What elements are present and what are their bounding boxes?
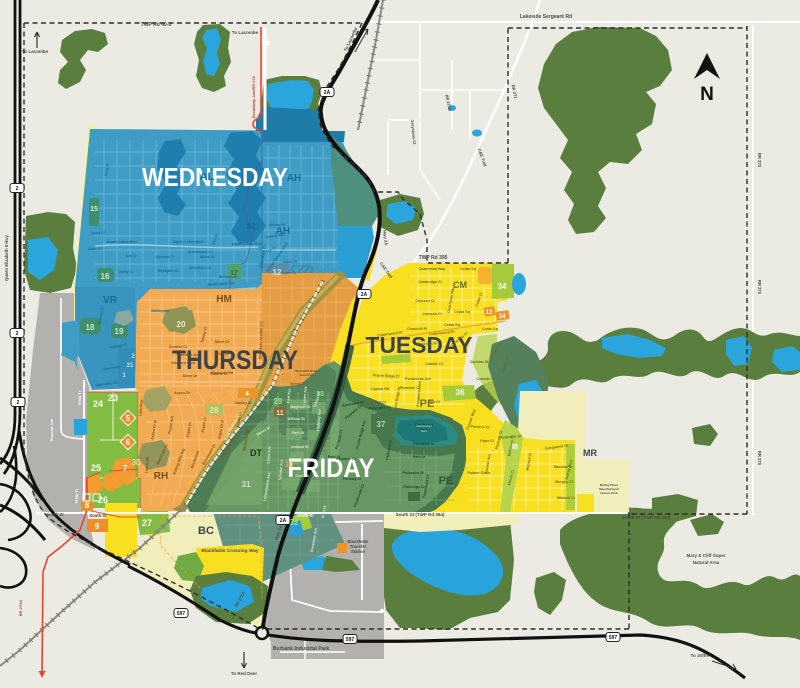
svg-text:Anna Cl: Anna Cl (91, 231, 105, 235)
svg-text:18: 18 (86, 323, 95, 332)
svg-text:Mitchell Cr: Mitchell Cr (557, 496, 576, 500)
svg-text:597: 597 (346, 637, 355, 643)
svg-text:RR 270: RR 270 (757, 451, 762, 466)
svg-text:South St (TWP Rd 394): South St (TWP Rd 394) (622, 515, 671, 520)
svg-text:Shull St: Shull St (295, 474, 309, 478)
svg-text:24: 24 (93, 399, 103, 409)
svg-text:Pine Cr: Pine Cr (428, 400, 441, 404)
svg-text:Gregg St: Gregg St (290, 382, 306, 386)
svg-text:Homes Park: Homes Park (600, 491, 618, 495)
svg-text:Park St: Park St (292, 431, 305, 435)
svg-text:Woodbine Cl: Woodbine Cl (189, 266, 211, 270)
svg-text:Aspen Lakes Blvd: Aspen Lakes Blvd (107, 240, 138, 244)
svg-text:36: 36 (456, 388, 465, 397)
svg-text:Churchill Pl: Churchill Pl (407, 327, 427, 331)
svg-text:Vista Tr: Vista Tr (74, 488, 80, 503)
svg-text:25: 25 (91, 463, 101, 473)
svg-text:597: 597 (177, 611, 186, 617)
svg-text:30: 30 (132, 458, 141, 467)
svg-text:28: 28 (210, 406, 219, 415)
svg-text:Burbank Industrial Park: Burbank Industrial Park (273, 646, 330, 652)
svg-text:Waghorn St: Waghorn St (290, 405, 311, 409)
svg-text:Sunrise Cl: Sunrise Cl (169, 345, 187, 349)
svg-text:WEDNESDAY: WEDNESDAY (142, 162, 288, 192)
svg-text:HM: HM (216, 294, 232, 305)
svg-text:Duncan Ave: Duncan Ave (49, 418, 54, 442)
svg-text:Natural Area: Natural Area (693, 560, 720, 565)
svg-text:Murphy Cl: Murphy Cl (555, 480, 573, 484)
svg-text:Cochlan St: Cochlan St (470, 360, 490, 364)
svg-text:Centennial: Centennial (416, 424, 432, 428)
svg-text:2: 2 (16, 331, 19, 337)
svg-text:VR: VR (103, 295, 118, 306)
svg-text:32: 32 (290, 518, 299, 527)
svg-text:Aspen Dr: Aspen Dr (174, 391, 191, 395)
svg-text:Coachman Way: Coachman Way (419, 267, 446, 271)
svg-text:Camille Ct: Camille Ct (425, 362, 443, 366)
svg-text:CM: CM (453, 280, 467, 290)
svg-text:AL: AL (246, 221, 258, 231)
svg-text:26: 26 (98, 495, 108, 505)
svg-text:Westgate Cr: Westgate Cr (158, 269, 180, 273)
svg-text:Ponderosa Ave: Ponderosa Ave (405, 377, 431, 381)
svg-text:13: 13 (486, 310, 493, 316)
svg-text:20: 20 (177, 320, 186, 329)
svg-text:12: 12 (273, 268, 282, 277)
svg-text:South St: South St (89, 513, 107, 518)
svg-text:23: 23 (108, 393, 118, 403)
svg-text:Cambridge Cl: Cambridge Cl (418, 280, 441, 284)
svg-text:34: 34 (498, 282, 507, 291)
svg-text:14: 14 (499, 314, 506, 320)
svg-text:RR 270: RR 270 (757, 153, 762, 168)
svg-text:19: 19 (115, 327, 124, 336)
svg-text:Winston Pl: Winston Pl (219, 275, 238, 279)
svg-text:THURSDAY: THURSDAY (172, 345, 298, 375)
svg-text:597: 597 (609, 635, 618, 641)
svg-text:Cedar Sq: Cedar Sq (444, 323, 460, 327)
svg-text:Valley Cr: Valley Cr (118, 270, 134, 274)
svg-text:Home Park: Home Park (300, 373, 315, 377)
svg-text:2: 2 (17, 400, 20, 406)
svg-text:2: 2 (16, 186, 19, 192)
svg-text:Conman Cr: Conman Cr (476, 377, 496, 381)
svg-text:9: 9 (95, 522, 100, 531)
svg-text:Trout St: Trout St (298, 513, 312, 517)
svg-text:Vista Tr: Vista Tr (77, 390, 83, 405)
svg-text:Willson St: Willson St (287, 417, 305, 421)
svg-text:South St: South St (185, 512, 203, 517)
svg-text:Silver Dr: Silver Dr (183, 374, 198, 378)
svg-text:Cyprus Rd: Cyprus Rd (371, 387, 389, 391)
svg-text:TWP Rd 40-0: TWP Rd 40-0 (141, 22, 172, 28)
svg-text:2A: 2A (361, 292, 368, 298)
svg-text:South St: South St (46, 512, 64, 517)
svg-text:Park St: Park St (328, 455, 341, 459)
svg-text:5: 5 (126, 414, 131, 423)
svg-text:21: 21 (127, 363, 134, 369)
svg-text:Ava Cr: Ava Cr (125, 254, 137, 258)
svg-text:Station: Station (351, 549, 366, 554)
svg-text:Womacks Rd: Womacks Rd (211, 371, 234, 375)
svg-text:Cedar Sq: Cedar Sq (454, 310, 470, 314)
svg-text:8: 8 (85, 501, 90, 510)
svg-text:Winko St: Winko St (290, 459, 306, 463)
svg-text:MR: MR (583, 448, 597, 458)
svg-text:RR 270: RR 270 (757, 280, 762, 295)
svg-text:BC: BC (198, 525, 214, 537)
svg-text:Piper Cl: Piper Cl (480, 439, 494, 443)
svg-text:AL: AL (200, 171, 215, 183)
svg-text:Aspen Lakes Blvd: Aspen Lakes Blvd (173, 240, 204, 244)
svg-text:Parkridge Cr: Parkridge Cr (403, 485, 425, 489)
svg-text:Park St: Park St (413, 455, 426, 459)
svg-text:Stanford Blvd: Stanford Blvd (171, 361, 195, 365)
svg-text:Arrowwood Cl: Arrowwood Cl (188, 250, 212, 254)
svg-text:Indiana St: Indiana St (291, 445, 309, 449)
svg-text:Aztec Cr: Aztec Cr (282, 271, 297, 275)
svg-text:Park: Park (421, 429, 428, 433)
svg-text:Arlen Cl: Arlen Cl (88, 247, 102, 251)
svg-text:Aspen Lakes Blvd: Aspen Lakes Blvd (232, 242, 263, 246)
svg-text:To Lacombe: To Lacombe (232, 30, 259, 35)
svg-text:PE: PE (439, 475, 454, 487)
svg-text:7: 7 (123, 464, 128, 473)
svg-text:Blackfalds Crossing Way: Blackfalds Crossing Way (201, 548, 258, 554)
svg-text:6: 6 (126, 438, 131, 447)
svg-text:2A: 2A (324, 90, 331, 96)
svg-text:Stanley St: Stanley St (234, 401, 252, 405)
svg-text:Almond Cr: Almond Cr (156, 255, 175, 259)
svg-text:DT: DT (250, 448, 262, 458)
svg-text:15: 15 (90, 206, 98, 213)
svg-text:2A: 2A (280, 518, 287, 524)
svg-text:Athens Pl: Athens Pl (269, 223, 286, 227)
svg-text:To Lacombe: To Lacombe (22, 49, 49, 54)
svg-text:RH: RH (154, 471, 168, 482)
svg-text:RR 273A: RR 273A (18, 600, 23, 617)
svg-text:37: 37 (377, 420, 386, 429)
svg-text:Queen Elizabeth II Hwy: Queen Elizabeth II Hwy (4, 234, 9, 281)
svg-text:Broadway Ave/RR 272: Broadway Ave/RR 272 (251, 75, 256, 118)
svg-text:Churchill Pl: Churchill Pl (417, 342, 437, 346)
svg-text:Adina Cl: Adina Cl (200, 255, 215, 259)
svg-text:TWP Rd 395: TWP Rd 395 (419, 255, 448, 261)
svg-text:Pondside Cr: Pondside Cr (413, 442, 435, 446)
svg-text:To Red Deer: To Red Deer (231, 671, 257, 676)
svg-text:Lakeside Sergeant Rd: Lakeside Sergeant Rd (520, 14, 572, 20)
svg-text:To Joffre: To Joffre (691, 653, 710, 658)
svg-text:16: 16 (101, 272, 110, 281)
svg-text:AH: AH (287, 173, 301, 184)
svg-text:31: 31 (242, 480, 251, 489)
svg-text:4: 4 (245, 391, 249, 398)
svg-text:Silver Dr: Silver Dr (215, 340, 230, 344)
svg-text:29: 29 (274, 397, 283, 406)
svg-text:Portway Cl: Portway Cl (343, 477, 362, 481)
svg-text:Cedar Sq: Cedar Sq (482, 327, 498, 331)
svg-text:Silver Dr: Silver Dr (215, 352, 230, 356)
svg-text:Crimson Cl: Crimson Cl (422, 312, 441, 316)
svg-text:Sunridge Ave: Sunridge Ave (177, 353, 200, 357)
svg-text:Palisades St: Palisades St (402, 471, 424, 475)
svg-text:11: 11 (276, 410, 284, 417)
svg-text:Aztec St: Aztec St (283, 260, 298, 264)
svg-text:27: 27 (142, 518, 152, 528)
svg-text:Mary & Cliff Soper: Mary & Cliff Soper (686, 553, 725, 558)
svg-text:Cedar Sq: Cedar Sq (460, 267, 476, 271)
svg-text:N: N (700, 84, 714, 105)
svg-text:Crimson Ct: Crimson Ct (415, 299, 435, 303)
svg-text:Wellington: Wellington (151, 309, 169, 313)
svg-text:South St (TWP Rd 394): South St (TWP Rd 394) (396, 512, 445, 517)
